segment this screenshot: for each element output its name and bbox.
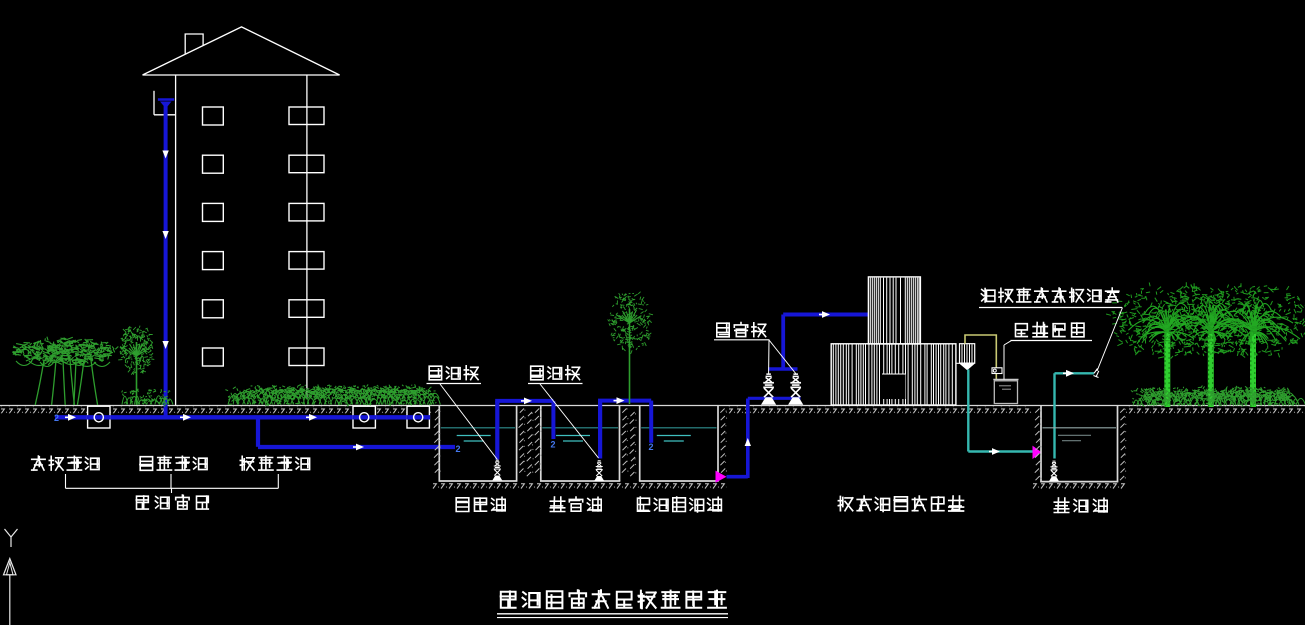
svg-text:2: 2 — [54, 413, 59, 423]
svg-text:2: 2 — [551, 440, 556, 450]
svg-text:2: 2 — [456, 444, 461, 454]
svg-text:2: 2 — [649, 442, 654, 452]
